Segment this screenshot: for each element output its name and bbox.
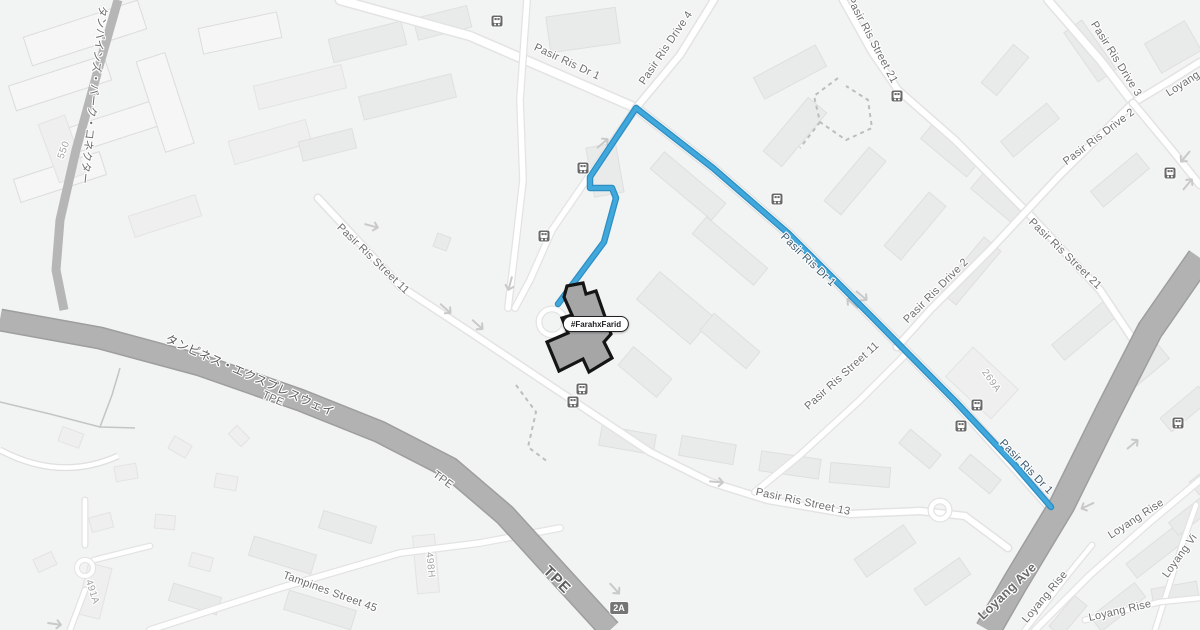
- bus-stop-icon[interactable]: [891, 90, 904, 103]
- place-label-farahxfarid[interactable]: #FarahxFarid: [563, 316, 629, 332]
- bus-stop-icon[interactable]: [491, 15, 504, 28]
- bus-stop-icon[interactable]: [1172, 417, 1185, 430]
- bus-stop-icon[interactable]: [1164, 167, 1177, 180]
- bus-stop-icon[interactable]: [971, 399, 984, 412]
- bus-stop-icon[interactable]: [577, 162, 590, 175]
- exit-badge-2a: 2A: [609, 601, 629, 615]
- map-graphics: [0, 0, 1200, 630]
- bus-stop-icon[interactable]: [771, 193, 784, 206]
- bus-stop-icon[interactable]: [576, 383, 589, 396]
- bus-stop-icon[interactable]: [538, 230, 551, 243]
- bus-stop-icon[interactable]: [955, 420, 968, 433]
- bus-stop-icon[interactable]: [567, 396, 580, 409]
- map-canvas[interactable]: Pasir Ris Dr 1 Pasir Ris Drive 4 Pasir R…: [0, 0, 1200, 630]
